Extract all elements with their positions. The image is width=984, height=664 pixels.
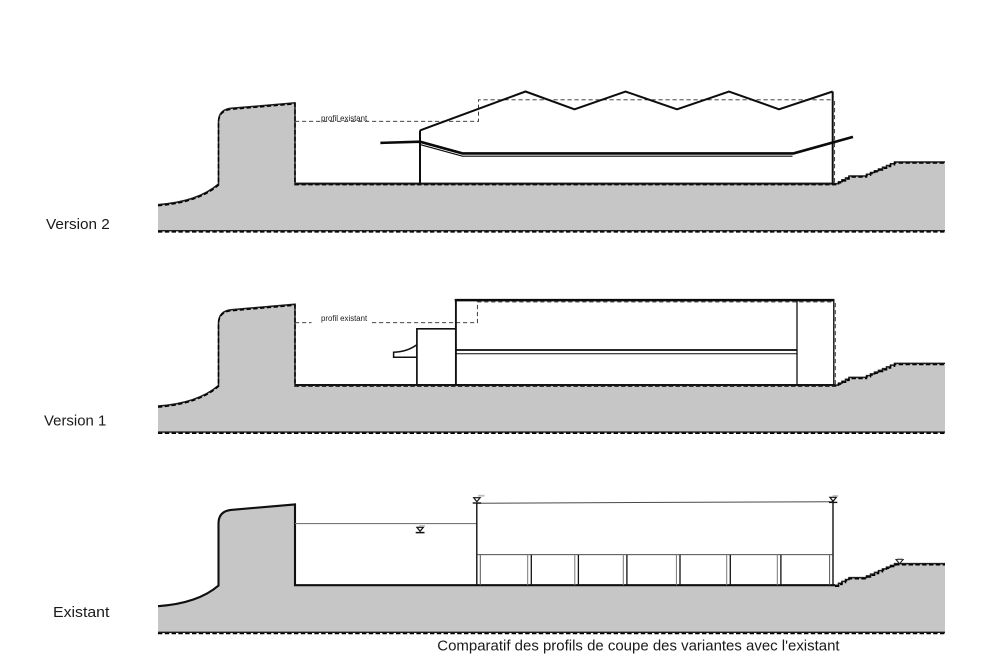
svg-text:profil existant: profil existant xyxy=(321,314,368,323)
svg-text:Existant: Existant xyxy=(53,604,110,621)
svg-text:Version 2: Version 2 xyxy=(46,216,110,233)
svg-text:Comparatif des profils de coup: Comparatif des profils de coupe des vari… xyxy=(437,638,840,655)
svg-text:profil existant: profil existant xyxy=(321,114,368,123)
svg-text:Version 1: Version 1 xyxy=(44,413,106,430)
